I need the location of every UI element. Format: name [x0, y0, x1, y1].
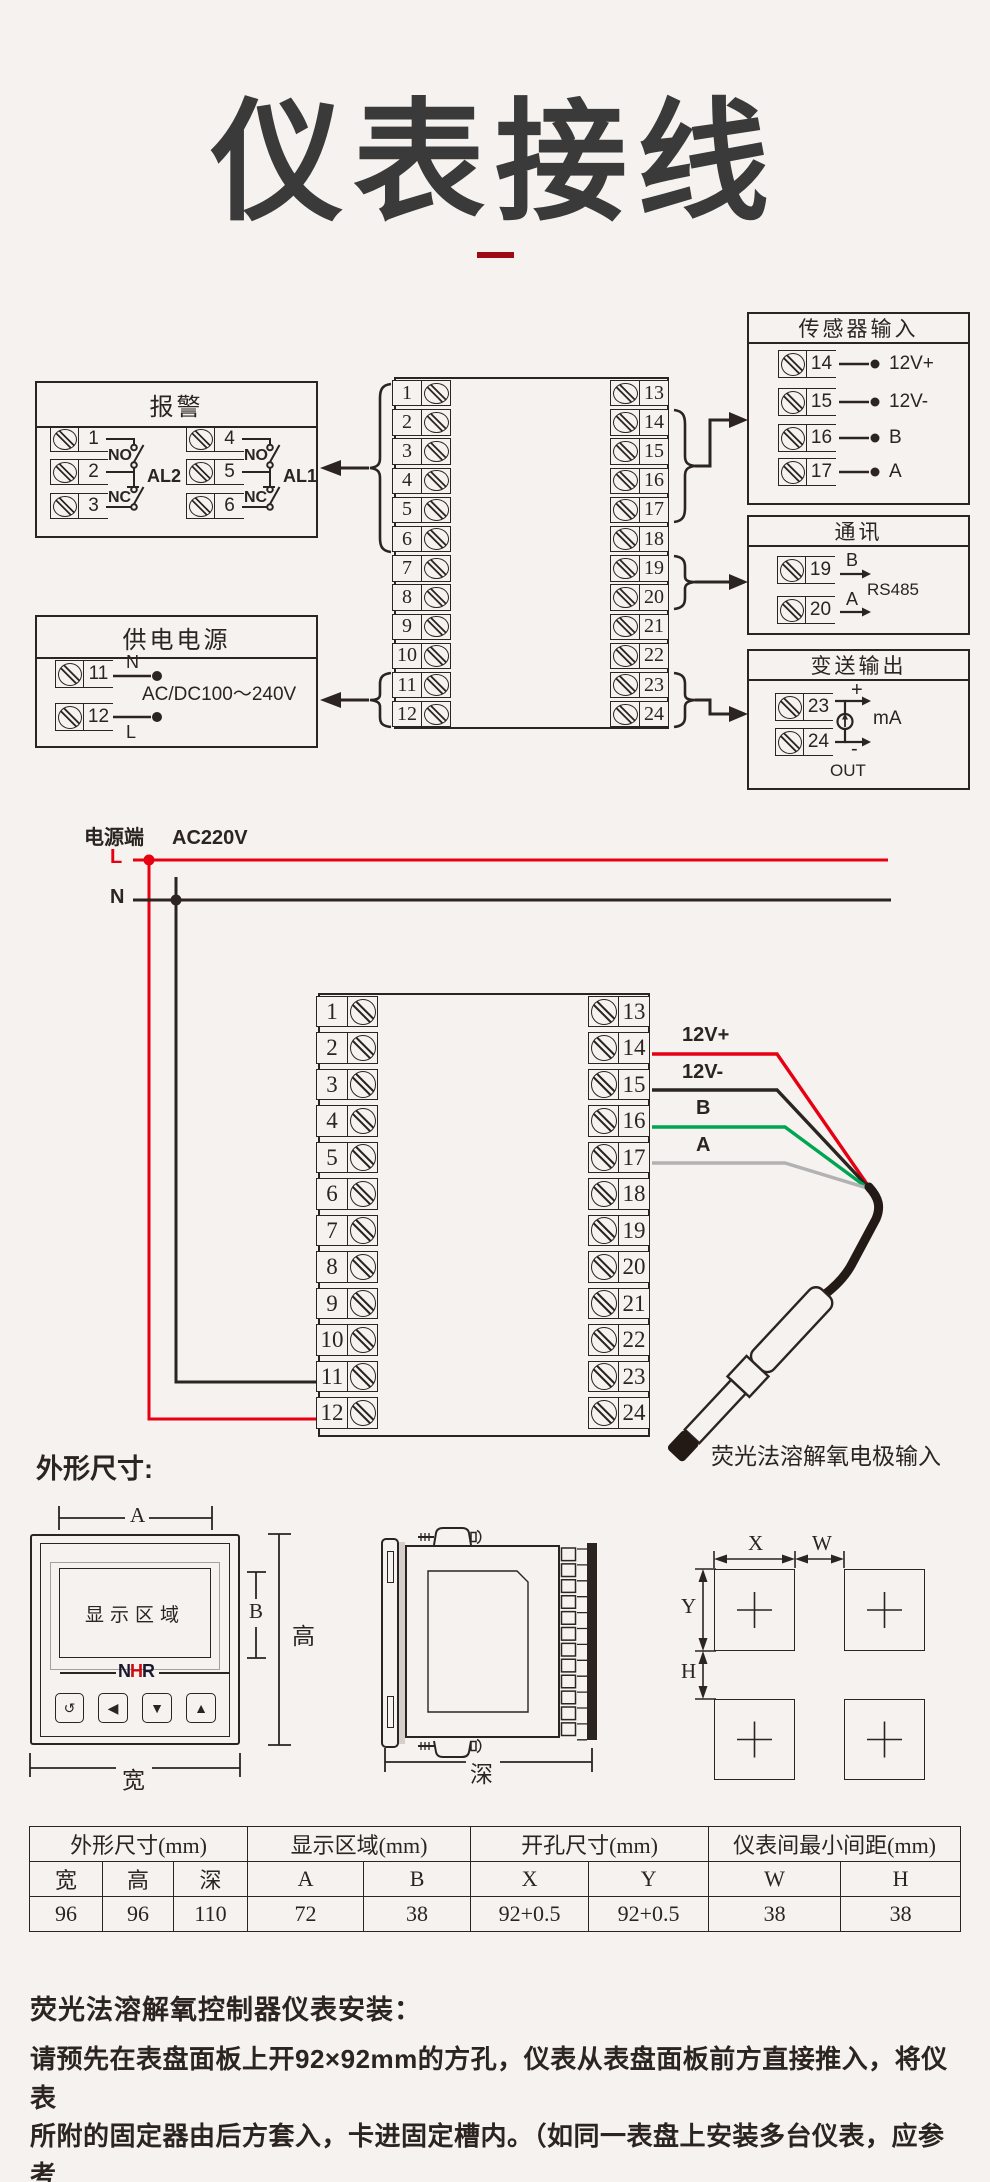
screw-icon [611, 556, 639, 580]
install-line: 请预先在表盘面板上开92×92mm的方孔，仪表从表盘面板前方直接推入，将仪表 [30, 2040, 970, 2117]
terminal-19: 19 [588, 1215, 650, 1246]
terminal-number: 18 [618, 1179, 649, 1208]
terminal-14: 14 [778, 350, 836, 378]
rear-cover-bar [587, 1543, 597, 1740]
brand-letter-h: H [130, 1661, 142, 1681]
terminal-21: 21 [588, 1288, 650, 1319]
cutout-square-2 [844, 1569, 925, 1651]
screw-icon [611, 644, 639, 668]
live-line-label: L [110, 846, 122, 868]
terminal-number: 6 [393, 527, 422, 551]
screw-icon [589, 1289, 618, 1318]
terminal-number: 15 [639, 439, 668, 463]
cutout-square-4 [844, 1699, 925, 1780]
terminal-23: 23 [588, 1361, 650, 1392]
terminal-7: 7 [392, 555, 451, 581]
screw-icon [589, 1070, 618, 1099]
terminal-number: 4 [393, 469, 422, 493]
brand-letter-n: N [118, 1661, 130, 1681]
transmit-box-title: 变送输出 [749, 651, 968, 681]
screw-icon [55, 703, 84, 731]
table-cell: 110 [174, 1897, 248, 1932]
terminal-24: 24 [610, 701, 669, 727]
screw-icon [422, 498, 450, 522]
terminal-number: 2 [393, 410, 422, 434]
plus-label: + [851, 679, 863, 701]
terminal-number: 15 [618, 1070, 649, 1099]
screw-icon [348, 1070, 377, 1099]
terminal-number: 13 [639, 381, 668, 405]
terminal-number: 22 [639, 644, 668, 668]
dim-w-label: W [812, 1532, 832, 1556]
brand-rule-right [159, 1672, 230, 1674]
terminal-14: 14 [610, 409, 669, 435]
terminal-number: 19 [806, 556, 835, 584]
table-group-header: 外形尺寸(mm) [30, 1827, 248, 1862]
brand-letter-r: R [142, 1661, 154, 1681]
terminal-19: 19 [777, 556, 835, 584]
terminal-number: 22 [618, 1325, 649, 1354]
display-area: 显示区域 [59, 1568, 211, 1658]
live-label: L [126, 722, 136, 742]
screw-icon [422, 527, 450, 551]
table-col-header: X [471, 1862, 589, 1897]
screw-icon [422, 439, 450, 463]
terminal-9: 9 [316, 1288, 378, 1319]
terminal-20: 20 [588, 1251, 650, 1282]
terminal-2: 2 [316, 1032, 378, 1063]
cutout-square-3 [714, 1699, 795, 1780]
terminal-4: 4 [186, 426, 244, 452]
minus-label: - [851, 738, 858, 760]
terminal-strip-right: 131415161718192021222324 [588, 996, 650, 1429]
no-label: NO [244, 447, 268, 465]
terminal-number: 17 [639, 498, 668, 522]
screw-icon [777, 556, 806, 584]
terminal-5: 5 [186, 459, 244, 485]
terminal-strip-left: 123456789101112 [392, 380, 451, 727]
table-cell: 72 [248, 1897, 364, 1932]
terminal-17: 17 [778, 458, 836, 486]
al2-label: AL2 [147, 466, 181, 486]
screw-icon [589, 1398, 618, 1427]
dim-x-label: X [748, 1532, 763, 1556]
table-cell: 38 [364, 1897, 471, 1932]
table-col-header: H [841, 1862, 961, 1897]
table-col-header: A [248, 1862, 364, 1897]
wire-label-12v-minus: 12V- [889, 391, 928, 412]
terminal-4: 4 [392, 468, 451, 494]
dim-width-label: 宽 [122, 1768, 145, 1794]
ma-label: mA [873, 708, 902, 729]
install-notes: 荧光法溶解氧控制器仪表安装： 请预先在表盘面板上开92×92mm的方孔，仪表从表… [30, 1988, 970, 2182]
wire-label-12v-minus: 12V- [682, 1061, 723, 1083]
dim-y-label: Y [681, 1595, 696, 1619]
terminal-7: 7 [316, 1215, 378, 1246]
terminal-number: 24 [618, 1398, 649, 1427]
table-group-header: 仪表间最小间距(mm) [709, 1827, 961, 1862]
table-col-header: 深 [174, 1862, 248, 1897]
screw-icon [55, 660, 84, 688]
terminal-4: 4 [316, 1105, 378, 1136]
terminal-3: 3 [50, 493, 108, 519]
terminal-20: 20 [777, 596, 835, 624]
screw-icon [422, 644, 450, 668]
screw-icon [589, 1033, 618, 1062]
screw-icon [348, 1289, 377, 1318]
terminal-number: 23 [639, 673, 668, 697]
up-triangle-icon: ▲ [194, 1700, 208, 1716]
terminal-8: 8 [392, 584, 451, 610]
terminal-number: 3 [79, 493, 108, 519]
terminal-1: 1 [316, 996, 378, 1027]
screw-icon [348, 1179, 377, 1208]
terminal-number: 16 [639, 469, 668, 493]
terminal-number: 1 [317, 997, 348, 1026]
terminal-number: 4 [317, 1106, 348, 1135]
terminal-14: 14 [588, 1032, 650, 1063]
terminal-number: 1 [393, 381, 422, 405]
page-title: 仪表接线 [0, 56, 990, 247]
screw-icon [348, 997, 377, 1026]
screw-icon [422, 615, 450, 639]
terminal-17: 17 [588, 1142, 650, 1173]
terminal-number: 18 [639, 527, 668, 551]
table-value-row: 96 96 110 72 38 92+0.5 92+0.5 38 38 [30, 1897, 961, 1932]
terminal-number: 21 [639, 615, 668, 639]
screw-icon [611, 469, 639, 493]
screw-icon [422, 469, 450, 493]
terminal-16: 16 [610, 468, 669, 494]
terminal-number: 16 [618, 1106, 649, 1135]
terminal-24: 24 [775, 728, 833, 756]
voltage-label: AC220V [172, 827, 248, 849]
screw-icon [348, 1033, 377, 1062]
screw-icon [778, 424, 807, 452]
terminal-16: 16 [588, 1105, 650, 1136]
terminal-8: 8 [316, 1251, 378, 1282]
terminal-number: 8 [317, 1252, 348, 1281]
up-key-button: ▲ [186, 1693, 216, 1723]
screw-icon [348, 1216, 377, 1245]
terminal-11: 11 [392, 672, 451, 698]
table-col-header: Y [589, 1862, 709, 1897]
out-label: OUT [830, 761, 866, 780]
terminal-number: 19 [639, 556, 668, 580]
terminal-number: 7 [317, 1216, 348, 1245]
no-label: NO [108, 447, 132, 465]
terminal-number: 11 [393, 673, 422, 697]
probe [663, 1187, 878, 1466]
screw-icon [348, 1143, 377, 1172]
terminal-1: 1 [392, 380, 451, 406]
power-rating-label: AC/DC100～240V [142, 684, 296, 705]
screw-icon [186, 426, 215, 452]
screw-icon [589, 1362, 618, 1391]
terminal-number: 17 [618, 1143, 649, 1172]
down-key-button: ▼ [142, 1693, 172, 1723]
terminal-number: 5 [393, 498, 422, 522]
screw-icon [348, 1325, 377, 1354]
dimensions-heading: 外形尺寸: [36, 1454, 153, 1484]
terminal-number: 13 [618, 997, 649, 1026]
wire-label-12v-plus: 12V+ [682, 1024, 729, 1046]
terminal-number: 20 [618, 1252, 649, 1281]
terminal-number: 5 [317, 1143, 348, 1172]
terminal-9: 9 [392, 614, 451, 640]
terminal-number: 5 [215, 459, 244, 485]
down-triangle-icon: ▼ [150, 1700, 164, 1716]
terminal-2: 2 [392, 409, 451, 435]
terminal-23: 23 [775, 693, 833, 721]
screw-icon [589, 997, 618, 1026]
terminal-2: 2 [50, 459, 108, 485]
mount-clamp-bottom [434, 1741, 471, 1757]
comm-box-title: 通讯 [749, 517, 968, 547]
terminal-6: 6 [186, 493, 244, 519]
screw-icon [777, 596, 806, 624]
terminal-24: 24 [588, 1397, 650, 1428]
screw-icon [611, 673, 639, 697]
terminal-number: 10 [393, 644, 422, 668]
screw-icon [611, 527, 639, 551]
cycle-arrow-icon: ↺ [64, 1700, 76, 1717]
terminal-19: 19 [610, 555, 669, 581]
terminal-number: 9 [317, 1289, 348, 1318]
terminal-number: 23 [804, 693, 833, 721]
rs485-a-label: A [846, 589, 858, 609]
terminal-number: 19 [618, 1216, 649, 1245]
rs485-b-label: B [846, 550, 858, 570]
terminal-number: 12 [84, 703, 113, 731]
table-cell: 96 [30, 1897, 103, 1932]
wire-label-12v-plus: 12V+ [889, 353, 934, 374]
dim-b-label: B [249, 1600, 263, 1624]
terminal-12: 12 [55, 703, 113, 731]
terminal-17: 17 [610, 497, 669, 523]
screw-icon [611, 439, 639, 463]
nc-label: NC [244, 489, 267, 507]
rear-terminal-stack [562, 1548, 576, 1736]
table-cell: 38 [841, 1897, 961, 1932]
screw-icon [589, 1179, 618, 1208]
dim-depth-label: 深 [470, 1762, 493, 1788]
screw-icon [348, 1252, 377, 1281]
left-triangle-icon: ◀ [108, 1700, 119, 1717]
screw-icon [778, 350, 807, 378]
screw-icon [348, 1106, 377, 1135]
terminal-11: 11 [316, 1361, 378, 1392]
terminal-number: 1 [79, 426, 108, 452]
neutral-label: N [126, 652, 139, 672]
terminal-number: 11 [84, 660, 113, 688]
terminal-5: 5 [316, 1142, 378, 1173]
screw-icon [589, 1216, 618, 1245]
cutout-square-1 [714, 1569, 795, 1651]
screw-icon [589, 1143, 618, 1172]
table-col-header: 高 [103, 1862, 174, 1897]
probe-label: 荧光法溶解氧电极输入 [711, 1444, 941, 1470]
terminal-number: 16 [807, 424, 836, 452]
probe-body [663, 1283, 836, 1466]
table-cell: 96 [103, 1897, 174, 1932]
terminal-number: 20 [639, 585, 668, 609]
terminal-6: 6 [316, 1178, 378, 1209]
probe-tip [666, 1429, 700, 1463]
screw-icon [348, 1398, 377, 1427]
terminal-15: 15 [778, 388, 836, 416]
terminal-number: 11 [317, 1362, 348, 1391]
sensor-box-title: 传感器输入 [749, 314, 968, 344]
terminal-21: 21 [610, 614, 669, 640]
terminal-number: 14 [807, 350, 836, 378]
table-cell: 92+0.5 [589, 1897, 709, 1932]
terminal-13: 13 [588, 996, 650, 1027]
dimensions-table: 外形尺寸(mm) 显示区域(mm) 开孔尺寸(mm) 仪表间最小间距(mm) 宽… [29, 1826, 961, 1932]
screw-icon [611, 410, 639, 434]
terminal-11: 11 [55, 660, 113, 688]
screw-icon [348, 1362, 377, 1391]
screw-icon [589, 1106, 618, 1135]
alarm-box-title: 报警 [37, 383, 316, 428]
mount-clamp-top [434, 1528, 471, 1545]
rs485-label: RS485 [867, 580, 919, 599]
dim-h-label: H [681, 1660, 696, 1684]
screw-icon [611, 381, 639, 405]
terminal-18: 18 [610, 526, 669, 552]
terminal-number: 6 [215, 493, 244, 519]
install-line: 所附的固定器由后方套入，卡进固定槽内。（如同一表盘上安装多台仪表，应参考 [30, 2117, 970, 2182]
terminal-number: 2 [79, 459, 108, 485]
wire-label-b: B [889, 427, 902, 448]
table-group-row: 外形尺寸(mm) 显示区域(mm) 开孔尺寸(mm) 仪表间最小间距(mm) [30, 1827, 961, 1862]
screw-icon [422, 410, 450, 434]
probe-cable [824, 1187, 879, 1295]
wire-label-b: B [696, 1097, 710, 1119]
table-cell: 92+0.5 [471, 1897, 589, 1932]
screw-icon [50, 426, 79, 452]
terminal-15: 15 [610, 438, 669, 464]
screw-icon [422, 702, 450, 726]
al1-label: AL1 [283, 466, 317, 486]
screw-icon [611, 702, 639, 726]
screw-icon [422, 673, 450, 697]
bezel-clip-bottom [387, 1696, 394, 1728]
table-col-header: W [709, 1862, 841, 1897]
shift-key-button: ◀ [98, 1693, 128, 1723]
side-view-body [405, 1545, 560, 1738]
terminal-number: 15 [807, 388, 836, 416]
bezel-clip-top [387, 1551, 394, 1583]
terminal-12: 12 [392, 701, 451, 727]
wire-label-a: A [696, 1134, 710, 1156]
terminal-number: 2 [317, 1033, 348, 1062]
terminal-20: 20 [610, 584, 669, 610]
terminal-13: 13 [610, 380, 669, 406]
screw-icon [775, 728, 804, 756]
terminal-3: 3 [392, 438, 451, 464]
terminal-number: 7 [393, 556, 422, 580]
terminal-number: 4 [215, 426, 244, 452]
brand-rule-left [60, 1672, 116, 1674]
wire-label-a: A [889, 461, 902, 482]
screw-icon [778, 388, 807, 416]
terminal-number: 20 [806, 596, 835, 624]
table-header-row: 宽 高 深 A B X Y W H [30, 1862, 961, 1897]
terminal-number: 17 [807, 458, 836, 486]
terminal-number: 12 [393, 702, 422, 726]
terminal-6: 6 [392, 526, 451, 552]
terminal-12: 12 [316, 1397, 378, 1428]
terminal-number: 14 [618, 1033, 649, 1062]
terminal-23: 23 [610, 672, 669, 698]
terminal-number: 23 [618, 1362, 649, 1391]
terminal-3: 3 [316, 1069, 378, 1100]
terminal-strip-right: 131415161718192021222324 [610, 380, 669, 727]
terminal-22: 22 [588, 1324, 650, 1355]
table-cell: 38 [709, 1897, 841, 1932]
terminal-number: 14 [639, 410, 668, 434]
screw-icon [611, 615, 639, 639]
terminal-number: 8 [393, 585, 422, 609]
terminal-1: 1 [50, 426, 108, 452]
terminal-16: 16 [778, 424, 836, 452]
screw-icon [611, 585, 639, 609]
screw-icon [422, 556, 450, 580]
terminal-15: 15 [588, 1069, 650, 1100]
screw-icon [611, 498, 639, 522]
terminal-number: 10 [317, 1325, 348, 1354]
terminal-10: 10 [392, 643, 451, 669]
screw-icon [775, 693, 804, 721]
dim-a-label: A [130, 1504, 145, 1528]
terminal-number: 12 [317, 1398, 348, 1427]
terminal-number: 21 [618, 1289, 649, 1318]
terminal-10: 10 [316, 1324, 378, 1355]
neutral-line-label: N [110, 886, 124, 908]
screw-icon [50, 459, 79, 485]
terminal-18: 18 [588, 1178, 650, 1209]
terminal-number: 24 [804, 728, 833, 756]
terminal-number: 3 [393, 439, 422, 463]
terminal-5: 5 [392, 497, 451, 523]
power-box-title: 供电电源 [37, 617, 316, 659]
table-col-header: 宽 [30, 1862, 103, 1897]
cycle-key-button: ↺ [55, 1693, 84, 1723]
screw-icon [422, 381, 450, 405]
screw-icon [186, 493, 215, 519]
brand-logo: NHR [118, 1661, 154, 1681]
terminal-number: 3 [317, 1070, 348, 1099]
terminal-number: 9 [393, 615, 422, 639]
page: 仪表接线 报警 1 2 3 4 5 6 供电电源 11 12 123456789… [0, 0, 990, 2182]
terminal-22: 22 [610, 643, 669, 669]
nc-label: NC [108, 489, 131, 507]
dim-height-label: 高 [292, 1624, 315, 1650]
table-col-header: B [364, 1862, 471, 1897]
terminal-strip-left: 123456789101112 [316, 996, 378, 1429]
screw-icon [589, 1252, 618, 1281]
table-group-header: 显示区域(mm) [248, 1827, 471, 1862]
terminal-number: 6 [317, 1179, 348, 1208]
screw-icon [186, 459, 215, 485]
title-accent-dash [477, 252, 514, 258]
install-heading: 荧光法溶解氧控制器仪表安装： [30, 1988, 970, 2027]
terminal-number: 24 [639, 702, 668, 726]
screw-icon [50, 493, 79, 519]
screw-icon [422, 585, 450, 609]
screw-icon [589, 1325, 618, 1354]
